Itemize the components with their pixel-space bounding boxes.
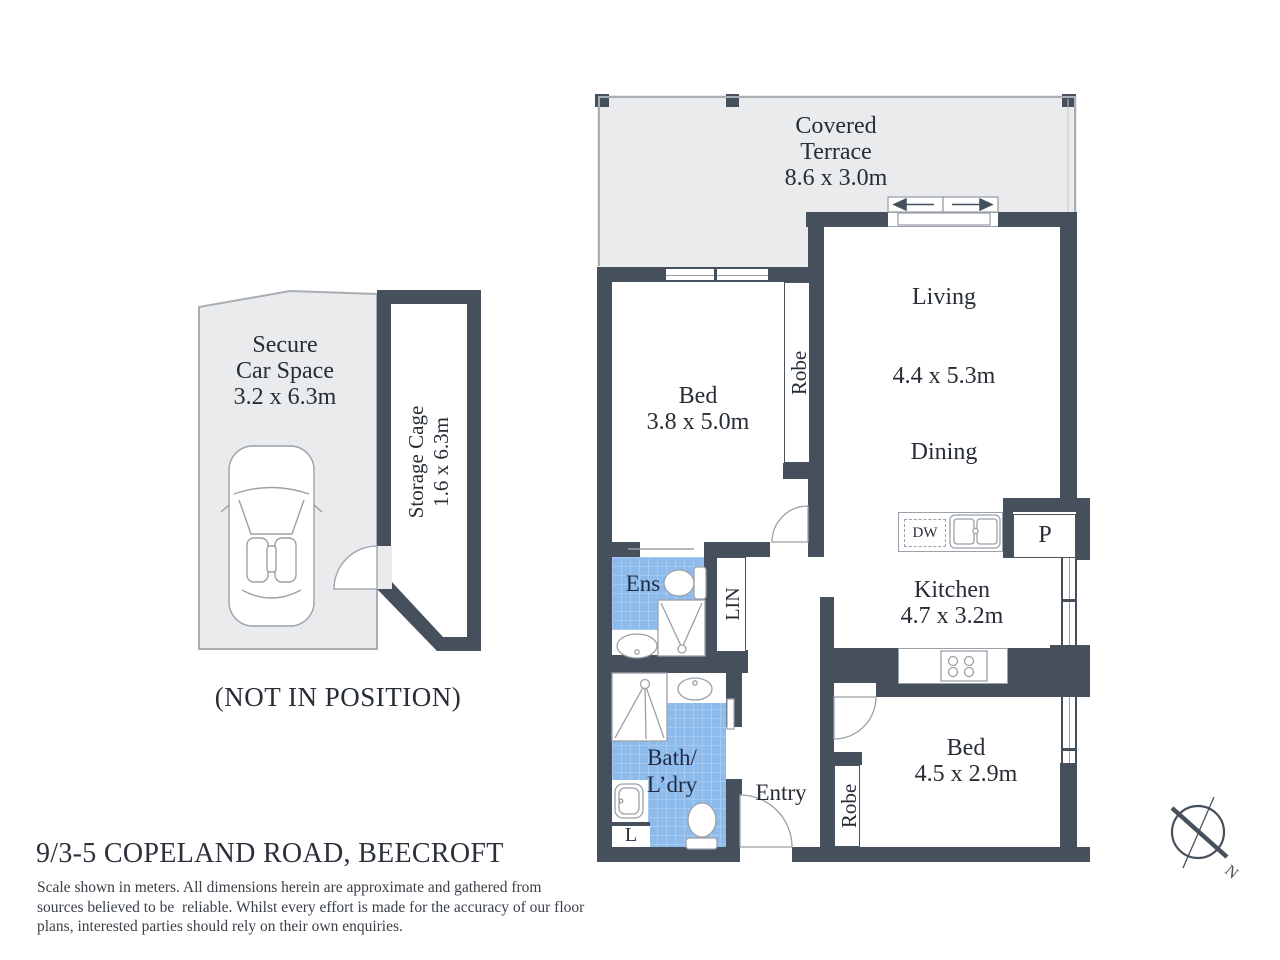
living-dims: 4.4 x 5.3m — [864, 363, 1024, 389]
bed2-door-arc — [834, 697, 876, 739]
ens-basin — [617, 634, 657, 658]
kitchen-sink — [950, 515, 1000, 548]
not-in-position-note: (NOT IN POSITION) — [158, 682, 518, 713]
bath-basin — [678, 678, 712, 700]
laundry-cupboard-label: L — [612, 823, 650, 848]
kitchen-name: Kitchen — [872, 577, 1032, 603]
dishwasher-label: DW — [904, 519, 946, 547]
terrace-label: Covered Terrace 8.6 x 3.0m — [746, 113, 926, 191]
bath-name-2: L’dry — [616, 771, 728, 798]
terrace-dims: 8.6 x 3.0m — [746, 165, 926, 191]
bed2-label: Bed 4.5 x 2.9m — [856, 735, 1076, 787]
ens-shower — [658, 600, 705, 656]
kitchen-dims: 4.7 x 3.2m — [872, 603, 1032, 629]
plan-linework: N — [0, 0, 1280, 960]
bed2-dims: 4.5 x 2.9m — [856, 761, 1076, 787]
floor-plan: N Covered Terrace 8.6 x 3.0m Living 4.4 … — [0, 0, 1280, 960]
compass-icon: N — [1172, 797, 1242, 883]
bed1-dims: 3.8 x 5.0m — [608, 409, 788, 435]
car-space-name-1: Secure — [185, 332, 385, 358]
disclaimer-line-1: Scale shown in meters. All dimensions he… — [37, 878, 541, 898]
linen-label: LIN — [721, 574, 741, 634]
dining-label: Dining — [864, 439, 1024, 465]
ensuite-label: Ens — [611, 570, 675, 597]
kitchen-label: Kitchen 4.7 x 3.2m — [872, 577, 1032, 629]
terrace-name-2: Terrace — [746, 139, 926, 165]
bed1-label: Bed 3.8 x 5.0m — [608, 383, 788, 435]
bed2-name: Bed — [856, 735, 1076, 761]
bath-slider-panel — [727, 699, 734, 729]
bath-toilet — [686, 803, 717, 849]
storage-door-opening — [376, 546, 392, 589]
robe-bed2-label: Robe — [837, 771, 859, 841]
address-title: 9/3-5 COPELAND ROAD, BEECROFT — [36, 838, 504, 870]
bath-name-1: Bath/ — [616, 744, 728, 771]
car-space-dims: 3.2 x 6.3m — [185, 384, 385, 410]
storage-cage-dims: 1.6 x 6.3m — [429, 362, 454, 562]
car-icon — [221, 446, 322, 626]
storage-cage-name: Storage Cage — [404, 362, 429, 562]
living-label: Living — [864, 284, 1024, 310]
bed1-name: Bed — [608, 383, 788, 409]
car-space-label: Secure Car Space 3.2 x 6.3m — [185, 332, 385, 410]
car-space-name-2: Car Space — [185, 358, 385, 384]
terrace-name-1: Covered — [746, 113, 926, 139]
pantry-label: P — [1014, 522, 1076, 548]
entry-label: Entry — [731, 779, 831, 806]
disclaimer-line-3: plans, interested parties should rely on… — [37, 917, 403, 937]
bed1-door-arc — [772, 506, 808, 542]
cooktop — [941, 651, 987, 681]
bath-laundry-label: Bath/ L’dry — [616, 744, 728, 798]
disclaimer-line-2: sources believed to be reliable. Whilst … — [37, 898, 584, 918]
bath-shower — [612, 673, 667, 741]
robe-bed1-label: Robe — [787, 338, 809, 408]
storage-cage-label: Storage Cage 1.6 x 6.3m — [404, 362, 456, 562]
compass-north-label: N — [1221, 862, 1241, 883]
